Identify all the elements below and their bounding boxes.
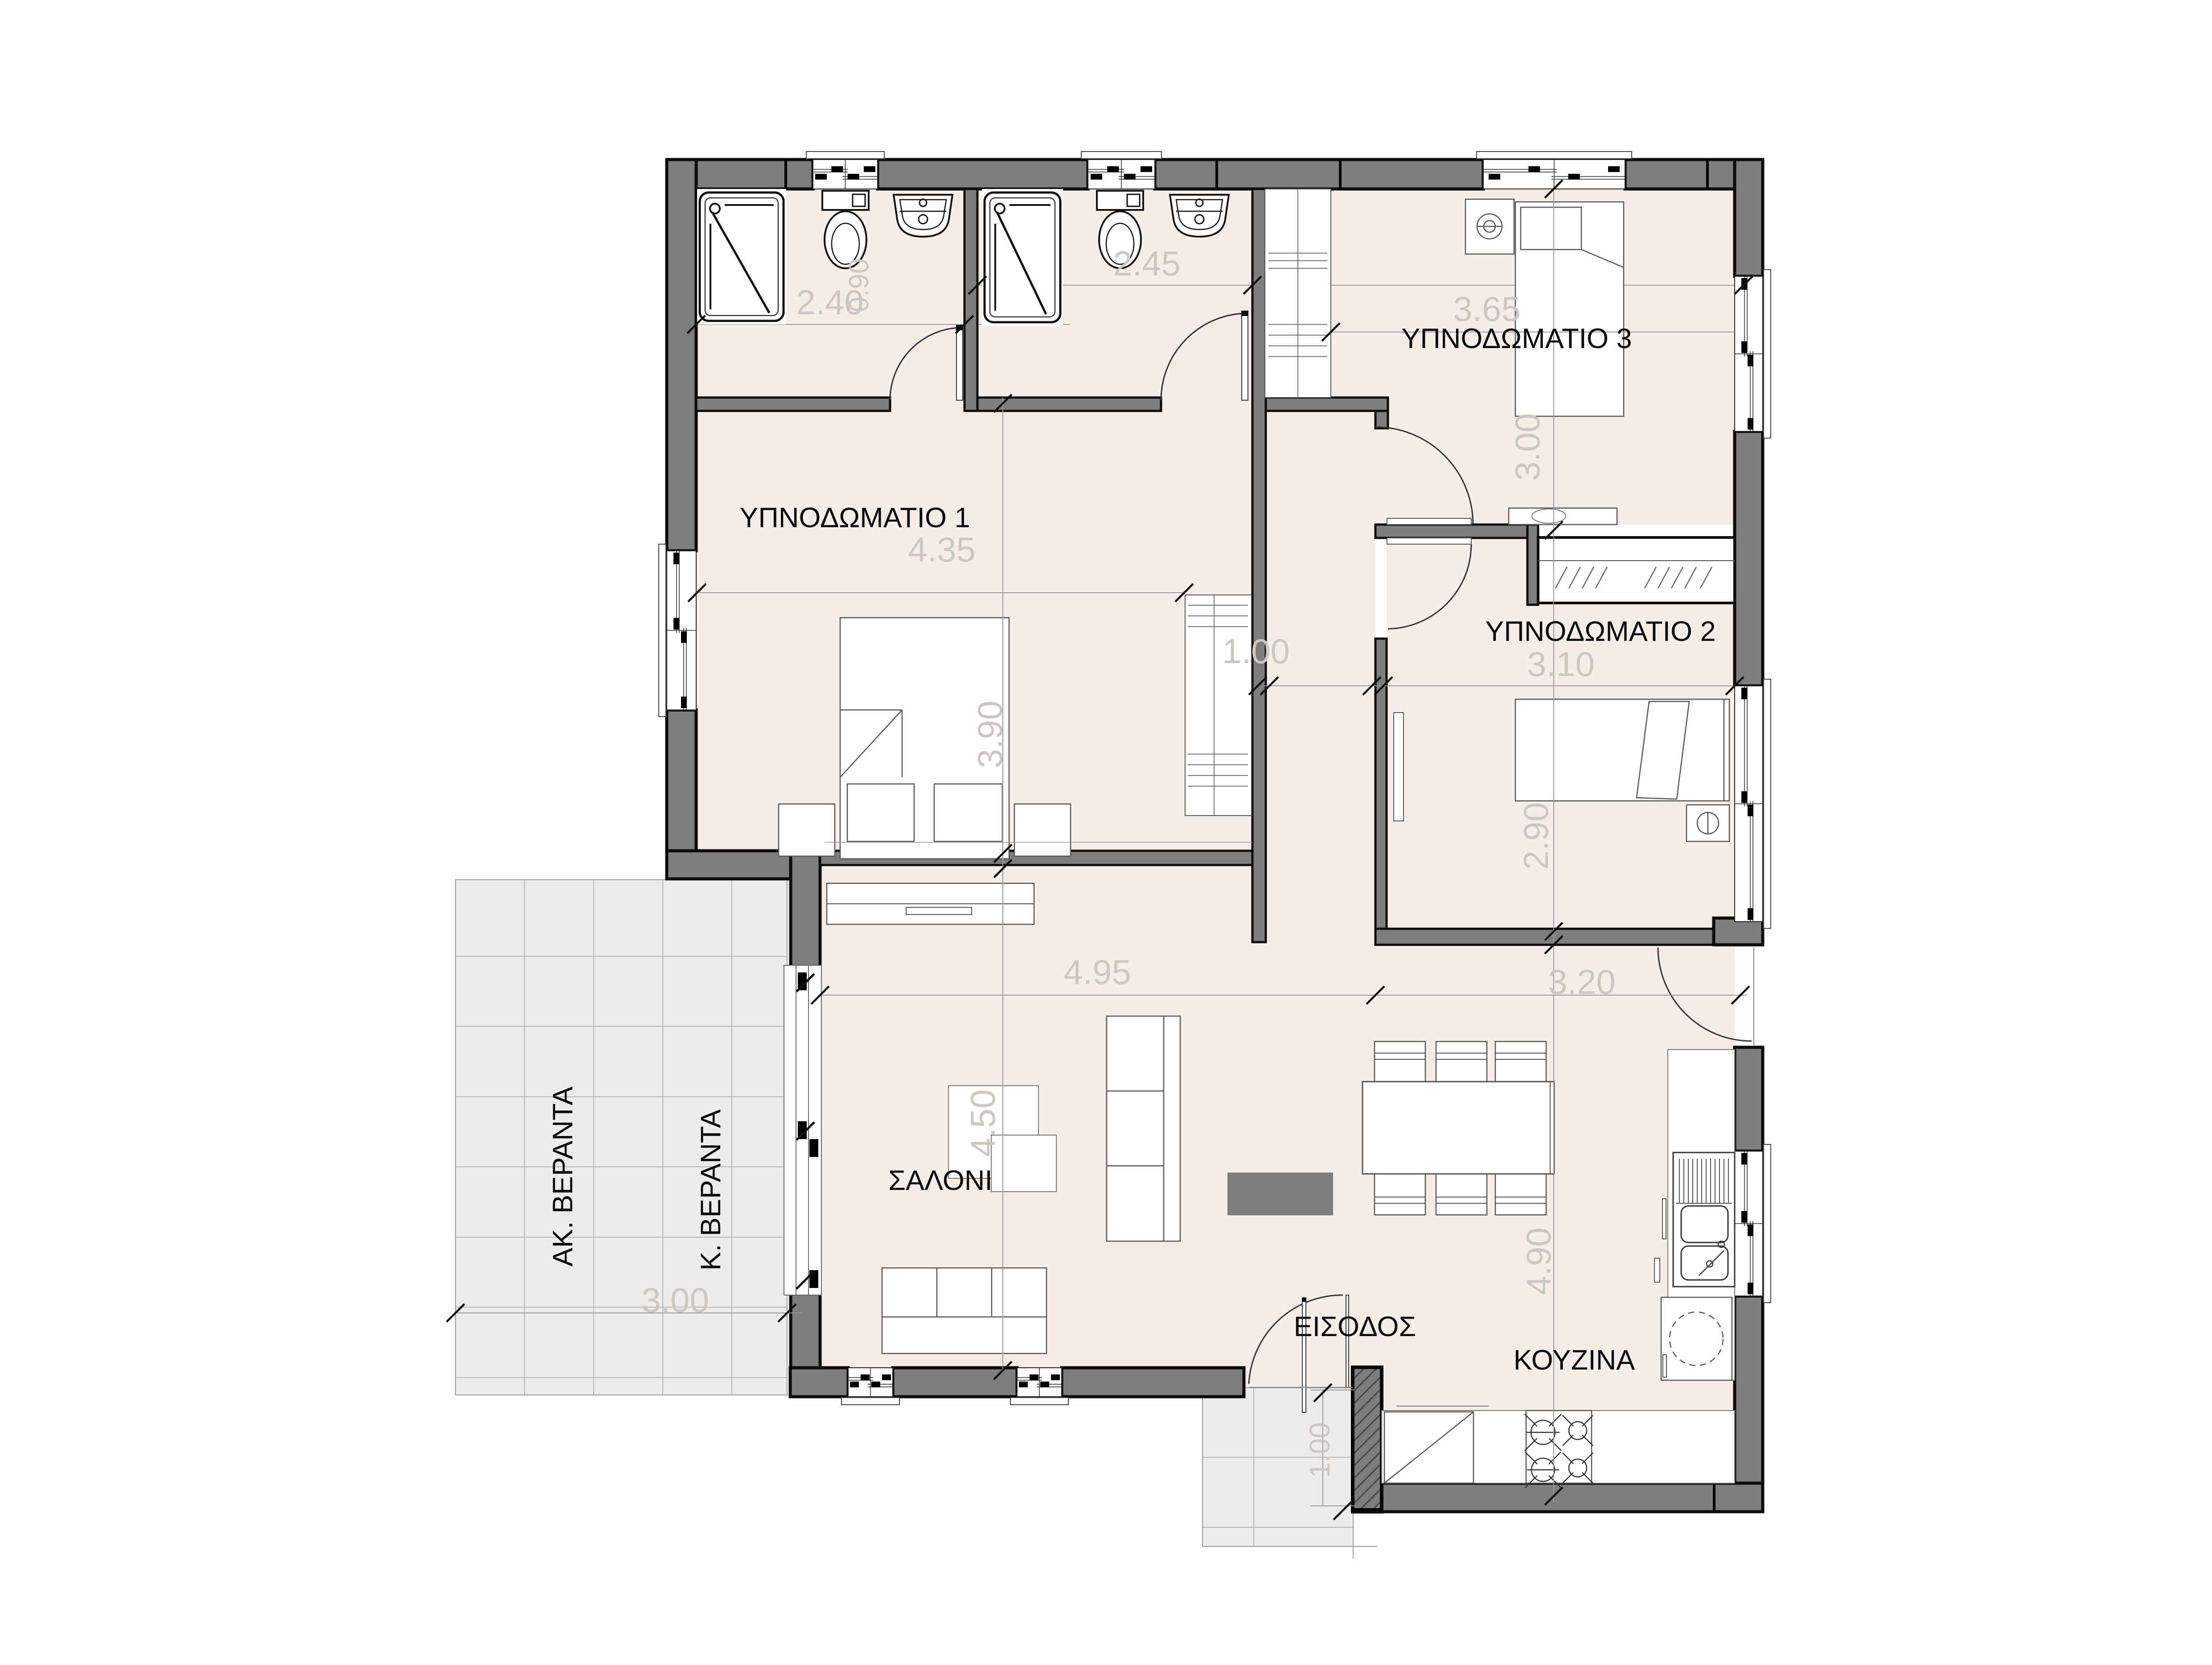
svg-text:ΥΠΝΟΔΩΜΑΤΙΟ 2: ΥΠΝΟΔΩΜΑΤΙΟ 2 xyxy=(1485,616,1715,647)
svg-text:2.90: 2.90 xyxy=(1516,802,1555,870)
svg-text:3.90: 3.90 xyxy=(970,701,1010,768)
svg-text:ΣΑΛΟΝΙ: ΣΑΛΟΝΙ xyxy=(888,1165,993,1196)
svg-text:1.00: 1.00 xyxy=(1222,632,1290,671)
svg-text:4.50: 4.50 xyxy=(963,1089,1002,1157)
svg-text:3.65: 3.65 xyxy=(1453,289,1521,328)
svg-text:3.10: 3.10 xyxy=(1527,644,1595,684)
svg-text:2.45: 2.45 xyxy=(1113,244,1181,283)
svg-text:Κ. ΒΕΡΑΝΤΑ: Κ. ΒΕΡΑΝΤΑ xyxy=(695,1109,726,1271)
svg-text:ΥΠΝΟΔΩΜΑΤΙΟ 1: ΥΠΝΟΔΩΜΑΤΙΟ 1 xyxy=(739,502,970,533)
svg-text:3.00: 3.00 xyxy=(1508,413,1547,481)
svg-text:4.35: 4.35 xyxy=(908,530,976,569)
svg-text:ΚΟΥΖΙΝΑ: ΚΟΥΖΙΝΑ xyxy=(1514,1345,1635,1376)
svg-text:3.00: 3.00 xyxy=(641,1280,709,1320)
svg-text:3.20: 3.20 xyxy=(1548,962,1616,1001)
svg-text:ΑΚ. ΒΕΡΑΝΤΑ: ΑΚ. ΒΕΡΑΝΤΑ xyxy=(547,1087,579,1267)
svg-text:0.90: 0.90 xyxy=(844,258,874,312)
svg-text:ΕΙΣΟΔΟΣ: ΕΙΣΟΔΟΣ xyxy=(1294,1311,1416,1342)
svg-text:1.00: 1.00 xyxy=(1304,1423,1336,1478)
svg-text:4.90: 4.90 xyxy=(1519,1227,1558,1295)
svg-text:4.95: 4.95 xyxy=(1063,952,1131,992)
